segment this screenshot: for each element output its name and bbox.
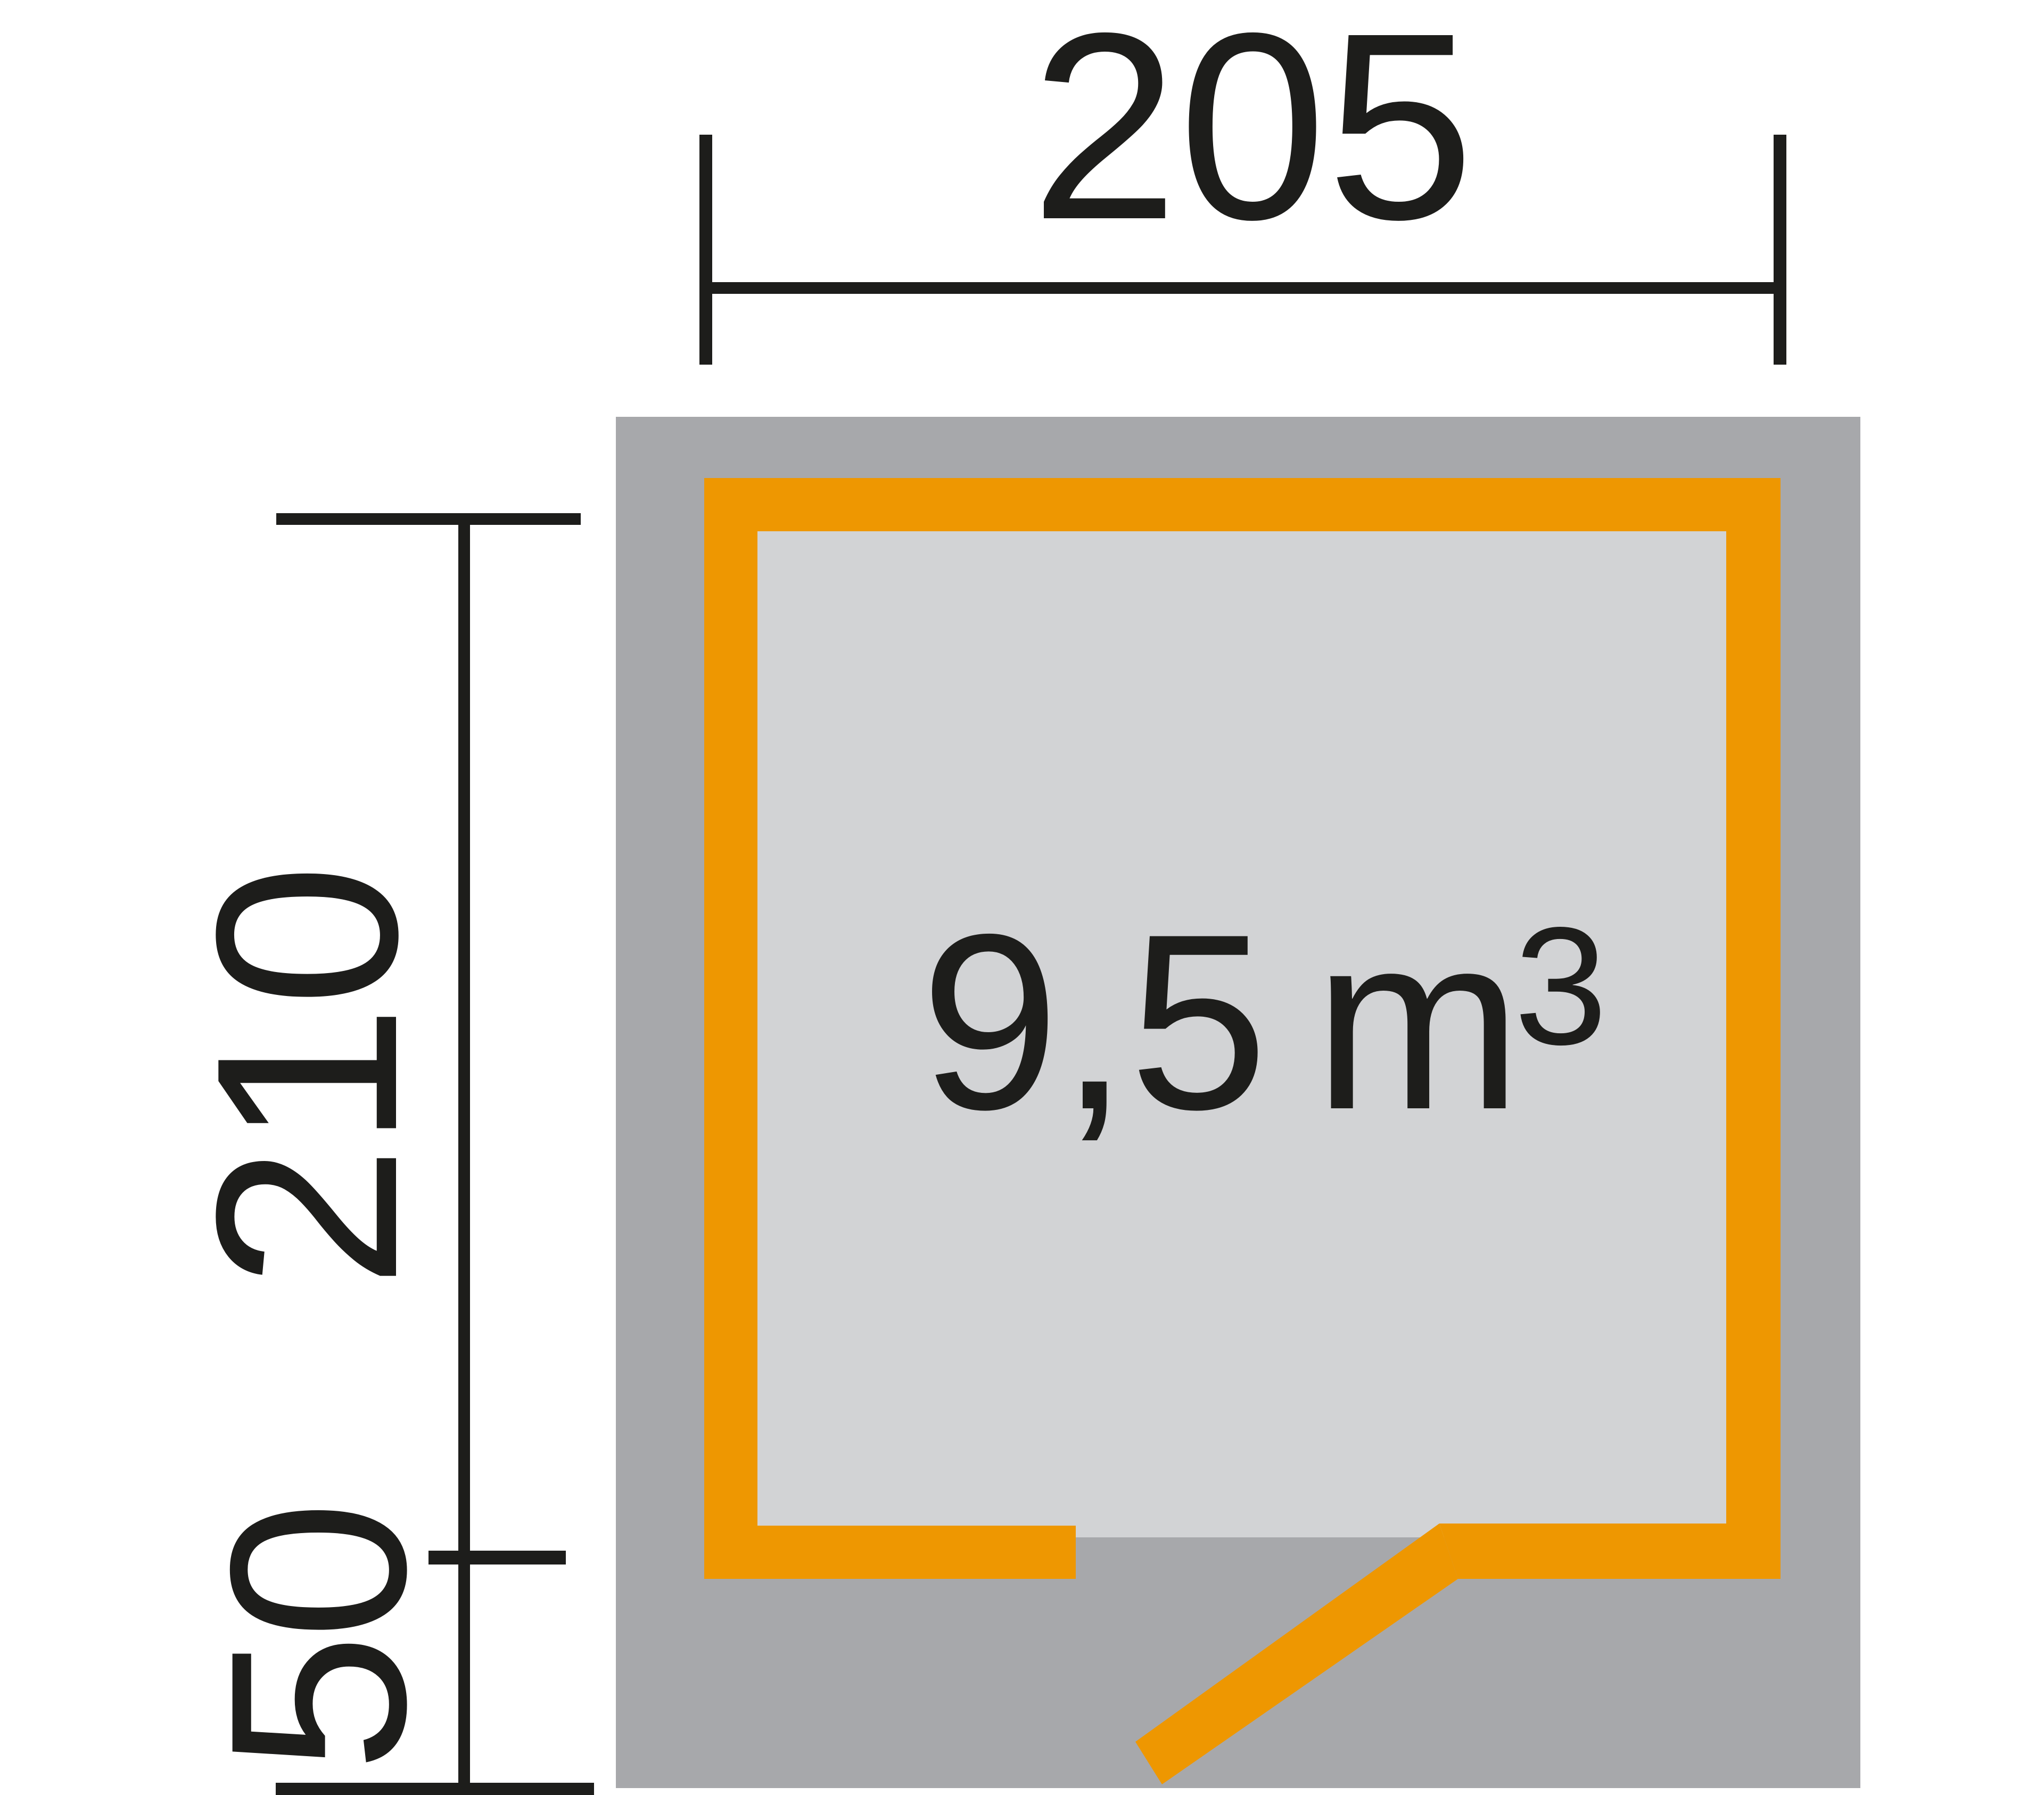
svg-text:9,5 m3: 9,5 m3 — [920, 882, 1608, 1162]
svg-text:50: 50 — [178, 1506, 458, 1772]
svg-text:205: 205 — [1031, 0, 1474, 275]
svg-text:210: 210 — [162, 866, 451, 1289]
